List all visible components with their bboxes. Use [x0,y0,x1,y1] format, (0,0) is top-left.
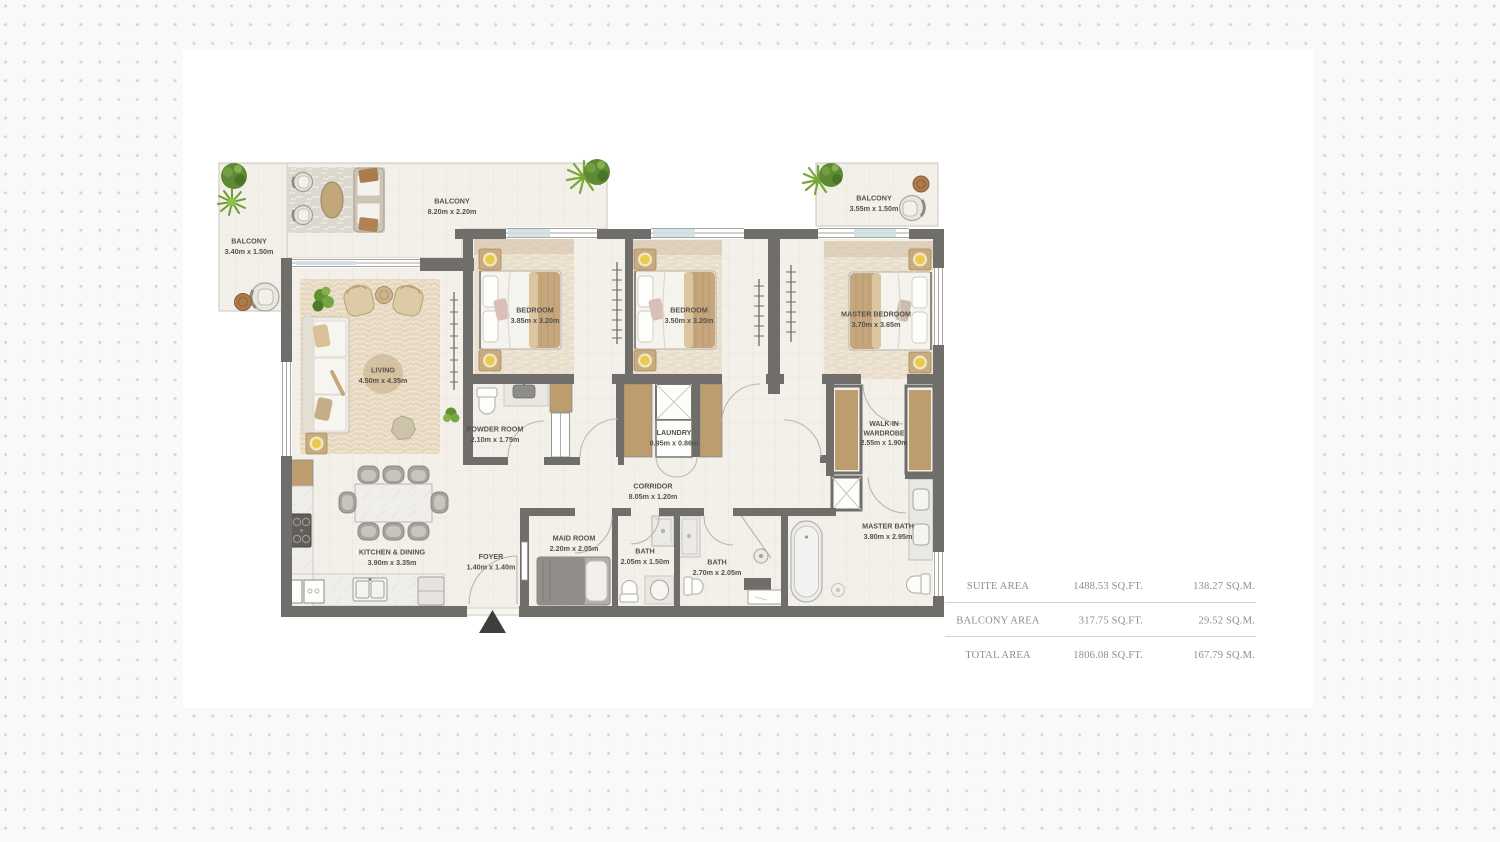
svg-text:3.40m x 1.50m: 3.40m x 1.50m [225,247,274,256]
svg-text:BALCONY: BALCONY [231,237,267,246]
svg-text:3.90m x 3.35m: 3.90m x 3.35m [368,558,417,567]
svg-text:3.50m x 3.20m: 3.50m x 3.20m [665,316,714,325]
svg-text:3.80m x 2.95m: 3.80m x 2.95m [864,532,913,541]
svg-text:FOYER: FOYER [479,552,505,561]
svg-text:2.20m x 2.05m: 2.20m x 2.05m [550,544,599,553]
svg-text:167.79 SQ.M.: 167.79 SQ.M. [1193,650,1255,661]
svg-text:SUITE AREA: SUITE AREA [967,581,1030,592]
svg-text:MAID ROOM: MAID ROOM [553,534,596,543]
svg-text:4.50m x 4.35m: 4.50m x 4.35m [359,376,408,385]
svg-text:8.20m x 2.20m: 8.20m x 2.20m [428,207,477,216]
svg-text:29.52 SQ.M.: 29.52 SQ.M. [1199,616,1255,627]
svg-text:BALCONY: BALCONY [856,194,892,203]
svg-text:3.70m x 3.65m: 3.70m x 3.65m [852,320,901,329]
svg-text:1488.53 SQ.FT.: 1488.53 SQ.FT. [1073,581,1143,592]
svg-text:WALK-IN: WALK-IN [869,421,898,428]
svg-text:2.05m x 1.50m: 2.05m x 1.50m [621,557,670,566]
svg-text:8.05m x 1.20m: 8.05m x 1.20m [629,492,678,501]
svg-text:3.85m x 3.20m: 3.85m x 3.20m [511,316,560,325]
svg-text:POWDER ROOM: POWDER ROOM [467,425,524,434]
svg-text:138.27 SQ.M.: 138.27 SQ.M. [1193,581,1255,592]
svg-text:MASTER BEDROOM: MASTER BEDROOM [841,310,911,319]
svg-text:1.40m x 1.40m: 1.40m x 1.40m [467,563,516,572]
svg-text:TOTAL AREA: TOTAL AREA [965,650,1031,661]
svg-text:LAUNDRY: LAUNDRY [657,428,692,437]
svg-text:BALCONY: BALCONY [434,197,470,206]
svg-text:MASTER BATH: MASTER BATH [862,522,914,531]
svg-text:BEDROOM: BEDROOM [670,306,708,315]
svg-text:2.55m x 1.90m: 2.55m x 1.90m [861,440,908,447]
svg-text:0.95m x 0.86m: 0.95m x 0.86m [650,439,699,448]
svg-text:WARDROBE: WARDROBE [864,431,905,438]
svg-text:3.55m x 1.50m: 3.55m x 1.50m [850,204,899,213]
svg-text:2.70m x 2.05m: 2.70m x 2.05m [693,568,742,577]
svg-text:2.10m x 1.75m: 2.10m x 1.75m [471,435,520,444]
svg-text:BATH: BATH [635,547,654,556]
svg-text:1806.08 SQ.FT.: 1806.08 SQ.FT. [1073,650,1143,661]
svg-text:317.75 SQ.FT.: 317.75 SQ.FT. [1079,616,1143,627]
svg-text:KITCHEN & DINING: KITCHEN & DINING [359,548,426,557]
svg-text:CORRIDOR: CORRIDOR [633,482,673,491]
svg-text:BATH: BATH [707,558,726,567]
svg-text:BALCONY AREA: BALCONY AREA [956,616,1040,627]
svg-text:BEDROOM: BEDROOM [516,306,554,315]
svg-text:LIVING: LIVING [371,366,395,375]
